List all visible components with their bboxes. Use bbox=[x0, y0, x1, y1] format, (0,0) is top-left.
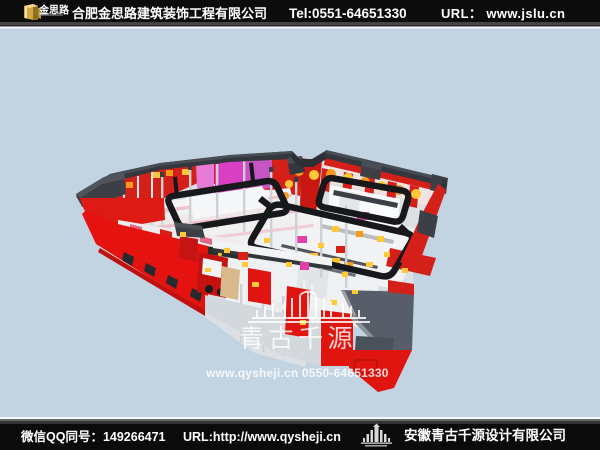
svg-text:Tel:0551-64651330: Tel:0551-64651330 bbox=[289, 6, 407, 21]
svg-text:微信QQ同号：149266471: 微信QQ同号：149266471 bbox=[20, 429, 166, 444]
svg-text:青古千源: 青古千源 bbox=[239, 325, 357, 353]
svg-text:合肥金思路建筑装饰工程有限公司: 合肥金思路建筑装饰工程有限公司 bbox=[72, 6, 267, 21]
svg-text:www.qysheji.cn 0550-64651330: www.qysheji.cn 0550-64651330 bbox=[205, 366, 389, 380]
svg-text:URL： www.jslu.cn: URL： www.jslu.cn bbox=[441, 6, 565, 21]
svg-text:URL:http://www.qysheji.cn: URL:http://www.qysheji.cn bbox=[183, 430, 341, 444]
svg-text:安徽青古千源设计有限公司: 安徽青古千源设计有限公司 bbox=[404, 427, 566, 443]
